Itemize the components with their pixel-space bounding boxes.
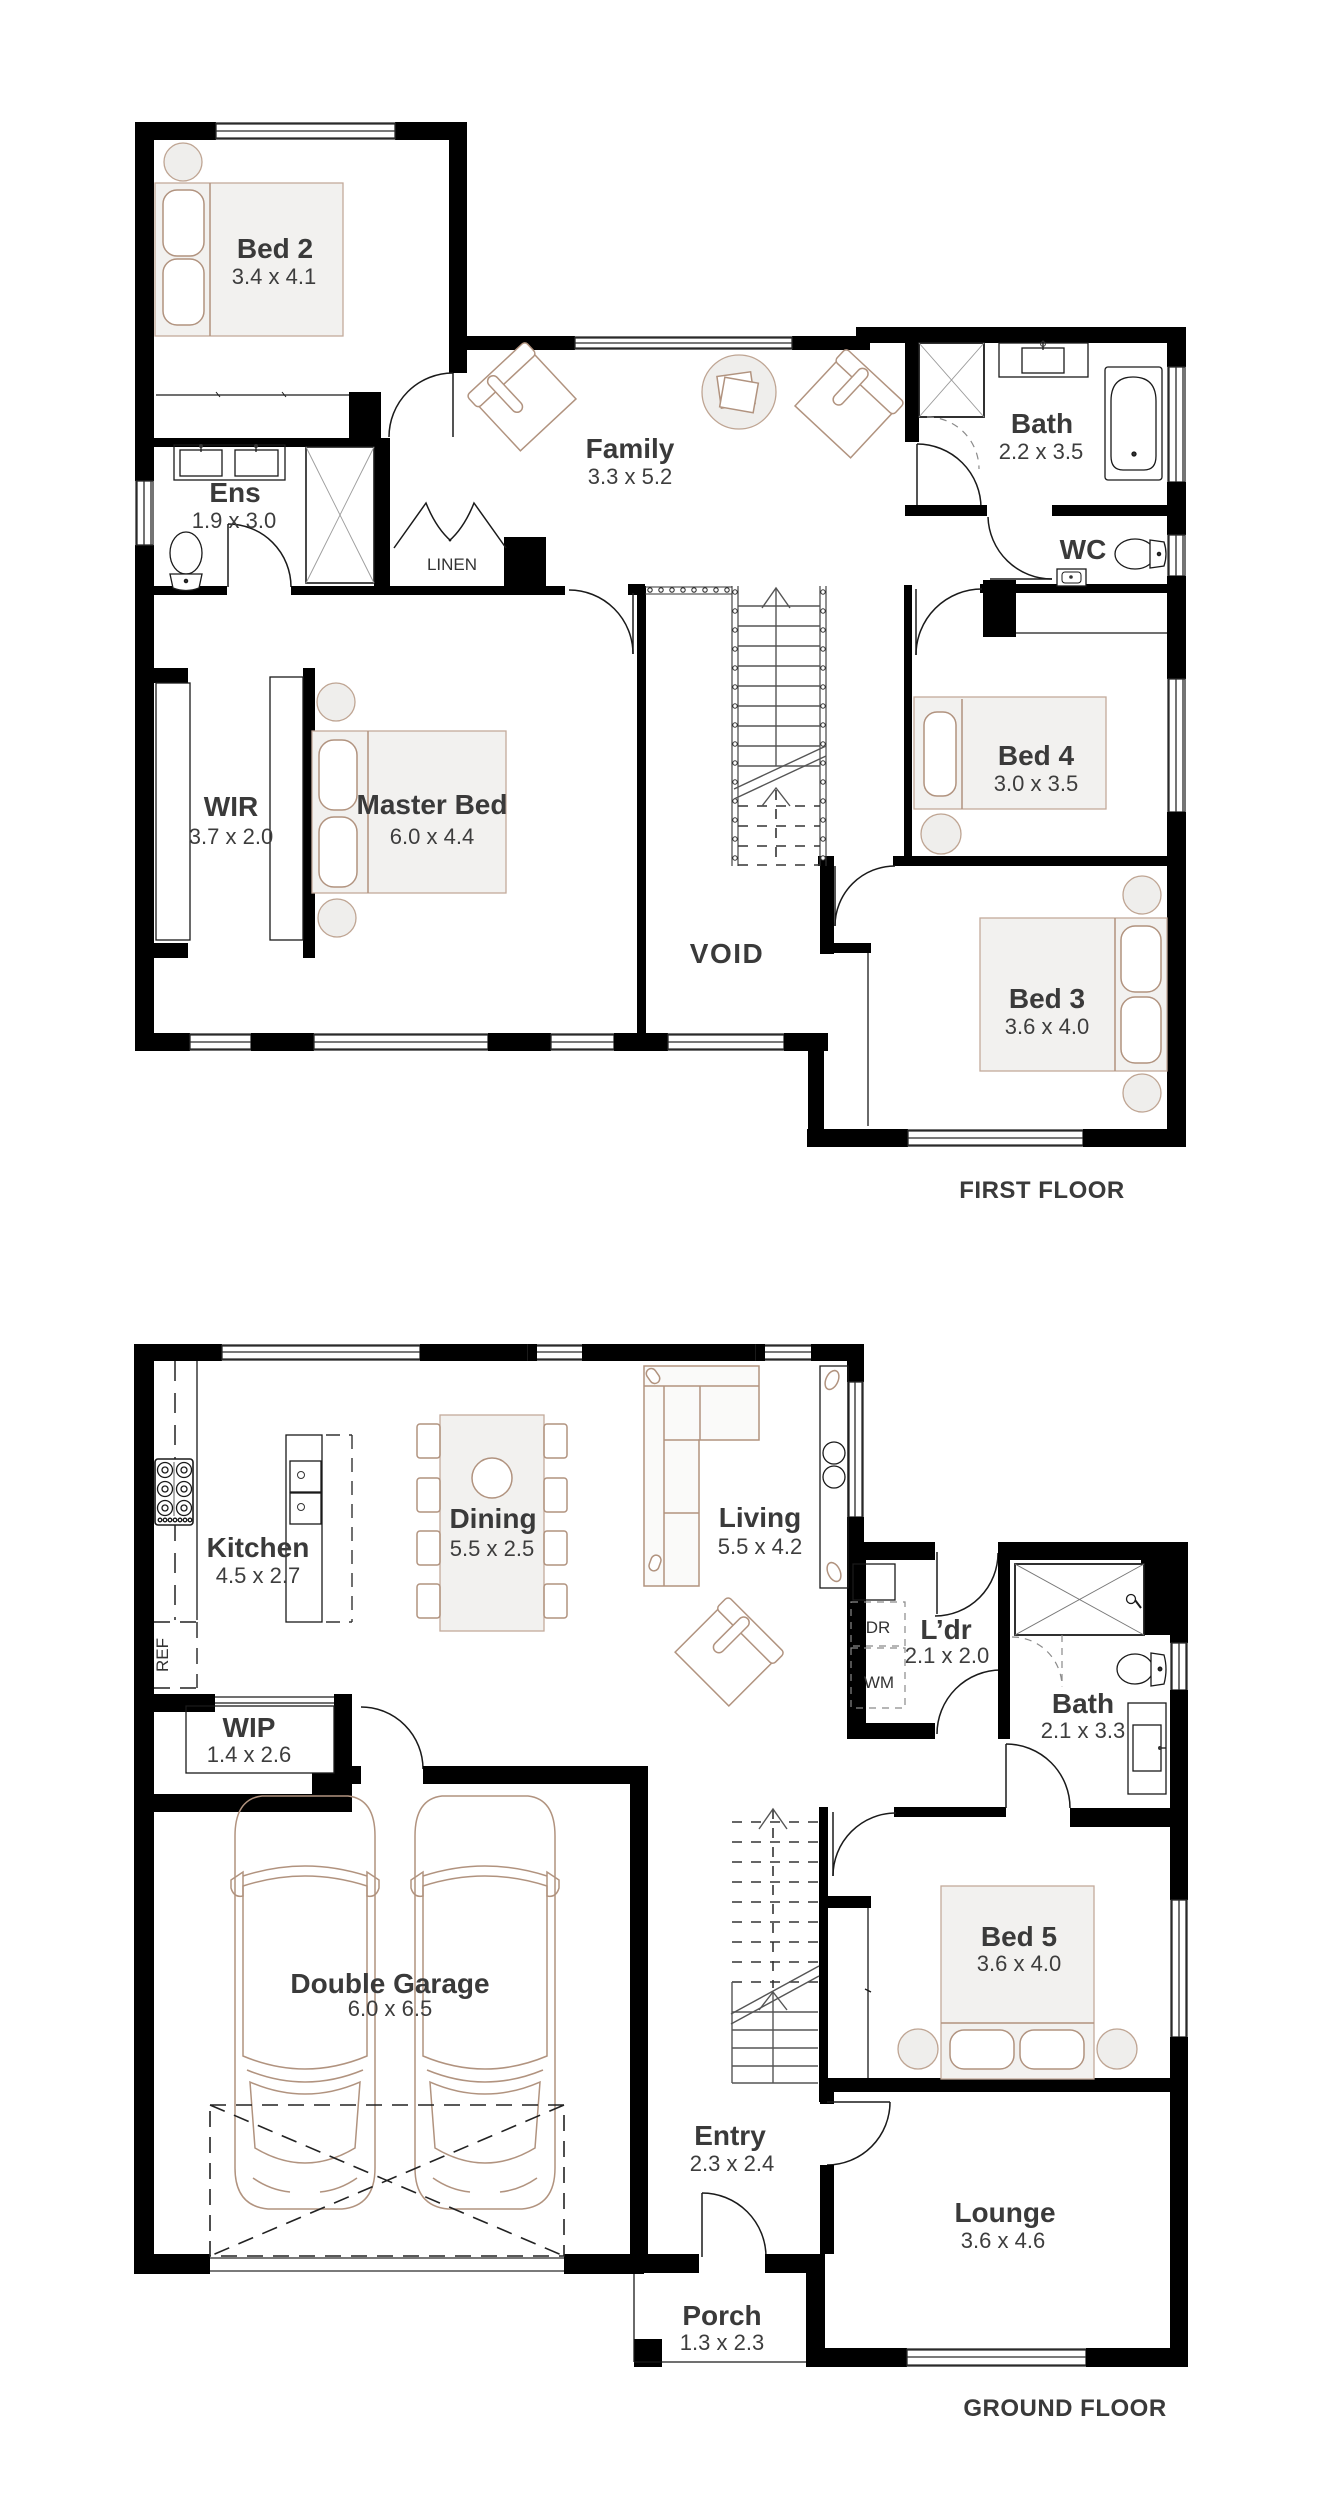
svg-text:Lounge: Lounge — [954, 2197, 1055, 2228]
svg-text:4.5 x 2.7: 4.5 x 2.7 — [216, 1563, 300, 1588]
svg-text:2.1 x 2.0: 2.1 x 2.0 — [905, 1643, 989, 1668]
svg-text:3.4 x 4.1: 3.4 x 4.1 — [232, 264, 316, 289]
svg-text:2.2 x 3.5: 2.2 x 3.5 — [999, 439, 1083, 464]
svg-text:Kitchen: Kitchen — [207, 1532, 310, 1563]
svg-text:LINEN: LINEN — [427, 555, 477, 574]
svg-text:L’dr: L’dr — [920, 1614, 971, 1645]
svg-text:REF: REF — [153, 1638, 172, 1672]
svg-text:1.3 x 2.3: 1.3 x 2.3 — [680, 2330, 764, 2355]
svg-text:Bath: Bath — [1052, 1688, 1114, 1719]
svg-text:3.0 x 3.5: 3.0 x 3.5 — [994, 771, 1078, 796]
svg-text:Entry: Entry — [694, 2120, 766, 2151]
svg-text:2.1 x 3.3: 2.1 x 3.3 — [1041, 1718, 1125, 1743]
svg-text:Bath: Bath — [1011, 408, 1073, 439]
svg-text:5.5 x 2.5: 5.5 x 2.5 — [450, 1536, 534, 1561]
svg-text:2.3 x 2.4: 2.3 x 2.4 — [690, 2151, 774, 2176]
svg-text:FIRST FLOOR: FIRST FLOOR — [959, 1177, 1124, 1204]
svg-text:Dining: Dining — [449, 1503, 536, 1534]
svg-text:WIR: WIR — [204, 791, 258, 822]
svg-text:WIP: WIP — [223, 1712, 276, 1743]
svg-text:6.0 x 4.4: 6.0 x 4.4 — [390, 824, 474, 849]
svg-text:WC: WC — [1060, 534, 1107, 565]
svg-text:Ens: Ens — [209, 477, 260, 508]
svg-text:Porch: Porch — [682, 2300, 761, 2331]
svg-text:5.5 x 4.2: 5.5 x 4.2 — [718, 1534, 802, 1559]
svg-text:Master Bed: Master Bed — [357, 789, 508, 820]
svg-text:1.9 x 3.0: 1.9 x 3.0 — [192, 508, 276, 533]
svg-text:WM: WM — [864, 1673, 894, 1692]
svg-text:3.6 x 4.0: 3.6 x 4.0 — [1005, 1014, 1089, 1039]
svg-text:Bed 2: Bed 2 — [237, 233, 313, 264]
svg-text:3.6 x 4.0: 3.6 x 4.0 — [977, 1951, 1061, 1976]
svg-text:3.3 x 5.2: 3.3 x 5.2 — [588, 464, 672, 489]
svg-text:VOID: VOID — [690, 938, 764, 969]
svg-text:DR: DR — [866, 1618, 891, 1637]
svg-text:Family: Family — [586, 433, 675, 464]
svg-text:6.0 x 6.5: 6.0 x 6.5 — [348, 1996, 432, 2021]
svg-text:Double Garage: Double Garage — [290, 1968, 489, 1999]
svg-text:Bed 5: Bed 5 — [981, 1921, 1057, 1952]
svg-text:GROUND FLOOR: GROUND FLOOR — [963, 2395, 1166, 2422]
svg-text:Living: Living — [719, 1502, 801, 1533]
svg-text:3.7 x 2.0: 3.7 x 2.0 — [189, 824, 273, 849]
svg-text:1.4 x 2.6: 1.4 x 2.6 — [207, 1742, 291, 1767]
svg-text:3.6 x 4.6: 3.6 x 4.6 — [961, 2228, 1045, 2253]
svg-text:Bed 4: Bed 4 — [998, 740, 1075, 771]
svg-text:Bed 3: Bed 3 — [1009, 983, 1085, 1014]
